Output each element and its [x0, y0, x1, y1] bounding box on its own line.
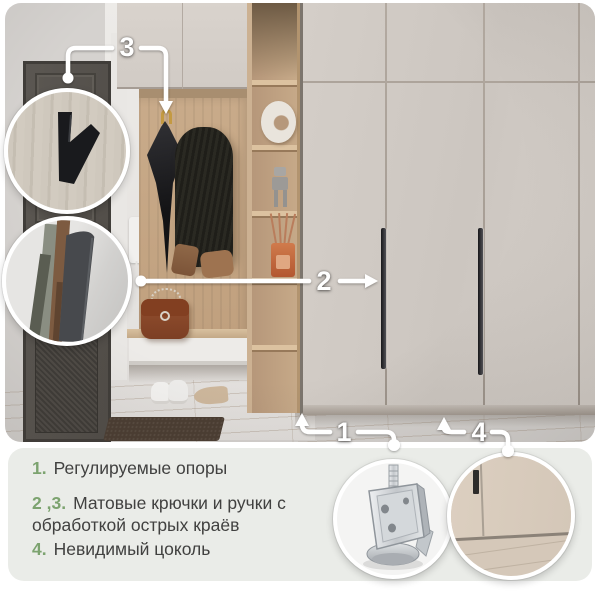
wardrobe-handle — [478, 228, 483, 375]
wardrobe-horizontal-seam — [303, 81, 595, 83]
robot-figurine — [274, 167, 286, 176]
floor-plank-line — [452, 540, 571, 558]
legend-text: Невидимый цоколь — [54, 539, 211, 559]
handle-notch — [473, 470, 479, 494]
wardrobe-door-seam — [578, 3, 580, 413]
callout-number-1: 1 — [331, 417, 357, 447]
plinth-detail-callout — [447, 452, 575, 580]
scarf — [171, 243, 200, 277]
shelf-slat — [252, 80, 297, 87]
legend-number: 4. — [32, 539, 47, 559]
bag-medallion — [160, 311, 170, 321]
shelf-slat — [252, 211, 297, 218]
robot-figurine — [274, 190, 278, 207]
shelf-slat — [252, 145, 297, 152]
bench-shadow — [129, 365, 249, 383]
hook-detail-callout — [4, 88, 130, 214]
legend-text: Матовые крючки и ручки с обработкой остр… — [32, 493, 286, 535]
brass-hook — [161, 109, 172, 124]
legend-item-4: 4.Невидимый цоколь — [32, 539, 332, 561]
edge-detail-callout — [2, 216, 132, 346]
product-infographic: 1.Регулируемые опоры 2 ,3.Матовые крючки… — [0, 0, 600, 591]
doormat — [103, 417, 225, 441]
legend-text: Регулируемые опоры — [54, 458, 228, 478]
white-shoe — [168, 380, 188, 404]
legend-item-2-3: 2 ,3.Матовые крючки и ручки с обработкой… — [32, 493, 332, 537]
adjustable-foot-callout — [333, 459, 453, 579]
callout-number-2: 2 — [311, 266, 337, 296]
panel-edges-icon — [6, 220, 128, 342]
wardrobe-plinth — [303, 405, 595, 415]
shelf-slat — [252, 345, 297, 352]
diffuser-bottle — [271, 243, 295, 277]
shelf-slat — [252, 278, 297, 285]
robot-figurine — [283, 190, 287, 207]
open-shelf-column — [247, 3, 300, 413]
matte-hook-icon — [8, 92, 126, 210]
wood-soffit — [139, 89, 253, 98]
robot-figurine — [272, 177, 288, 190]
callout-number-3: 3 — [114, 32, 140, 62]
legend-item-1: 1.Регулируемые опоры — [32, 458, 332, 480]
adjustable-foot-icon — [337, 463, 449, 575]
leather-bag — [141, 299, 189, 339]
upper-cabinet-seam — [182, 3, 183, 89]
shelf-shadow — [252, 3, 297, 78]
legend-number: 2 ,3. — [32, 493, 66, 513]
wardrobe-handle — [381, 228, 386, 369]
scarf — [200, 249, 235, 279]
diffuser-label — [276, 255, 290, 269]
legend-number: 1. — [32, 458, 47, 478]
wardrobe — [300, 3, 595, 415]
callout-number-4: 4 — [466, 417, 492, 447]
wardrobe-door-seam — [483, 3, 485, 413]
donut-vase — [261, 101, 296, 143]
bench-drawer — [129, 338, 249, 365]
plinth-door-panel — [447, 452, 575, 542]
